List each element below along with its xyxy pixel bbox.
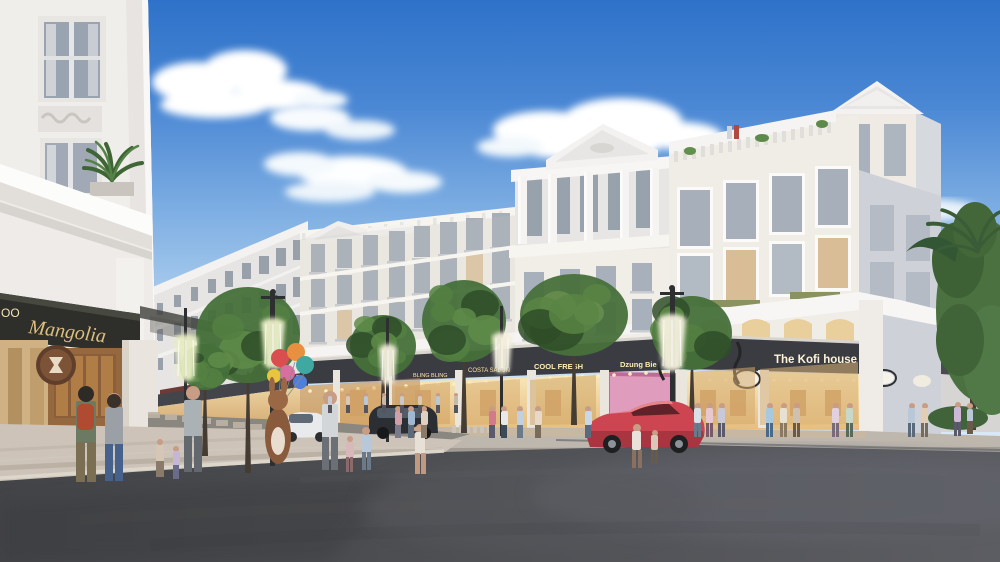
svg-text:BLING BLING: BLING BLING — [413, 373, 448, 379]
svg-text:Dzung Bie: Dzung Bie — [620, 360, 657, 369]
svg-text:OO: OO — [1, 306, 20, 320]
svg-text:COOL FRESH: COOL FRESH — [534, 362, 583, 371]
